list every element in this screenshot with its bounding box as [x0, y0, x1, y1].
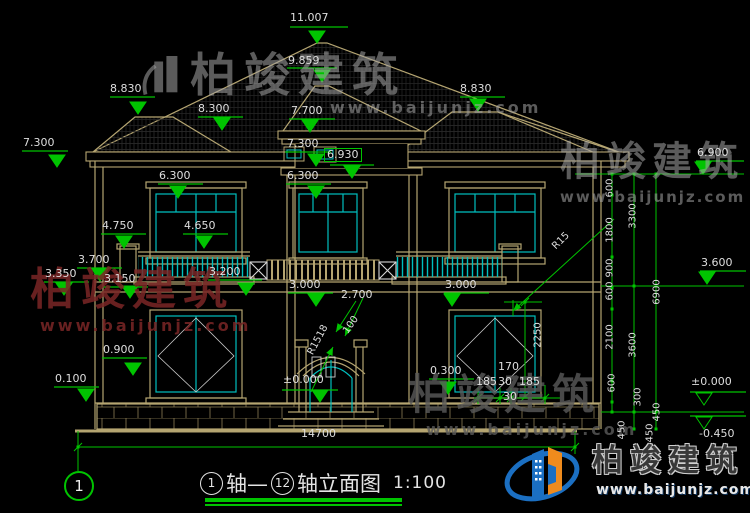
elevation-drawing — [0, 0, 750, 513]
title-text: 轴立面图 — [297, 468, 381, 498]
dim-label: 0.100 — [55, 373, 87, 385]
dim-label: 450 — [617, 420, 628, 439]
dim-label: 9.859 — [288, 55, 320, 67]
dim-label: 1800 — [605, 217, 616, 242]
brand-name: 柏竣建筑 — [592, 446, 744, 477]
axis-end-bubble: 12 — [271, 472, 294, 495]
dim-label: 7.300 — [287, 138, 319, 150]
dim-label: 14700 — [301, 428, 336, 440]
dim-label: 6.300 — [287, 170, 319, 182]
dim-label: 170 — [498, 361, 519, 373]
dim-label: 3.200 — [209, 266, 241, 278]
dim-label: 4.650 — [184, 220, 216, 232]
dim-label: 300 — [633, 387, 644, 406]
dim-label: 7.700 — [291, 105, 323, 117]
dim-label: 8.300 — [198, 103, 230, 115]
dim-label: 450 — [652, 402, 663, 421]
dim-label: 185 — [476, 376, 497, 388]
dim-label: 0.300 — [430, 365, 462, 377]
dim-label: 3.600 — [701, 257, 733, 269]
dim-label: -0.450 — [699, 428, 734, 440]
dim-label: 8.830 — [460, 83, 492, 95]
brand-logo: 柏竣建筑 www.baijunjz.com — [500, 438, 750, 510]
dim-label: ±0.000 — [691, 376, 732, 388]
title-underline — [205, 498, 402, 502]
dim-label: 4.750 — [102, 220, 134, 232]
blueprint-canvas: 柏竣建筑 www.baijunjz.com 柏竣建筑 www.baijunjz.… — [0, 0, 750, 513]
dim-label: 3300 — [628, 203, 639, 228]
dim-label: 3.000 — [289, 279, 321, 291]
dim-label: 0.900 — [103, 344, 135, 356]
dim-label: 3.350 — [45, 268, 77, 280]
dim-label: 6.300 — [159, 170, 191, 182]
title-text: 轴— — [226, 468, 268, 498]
dim-label: 600 — [605, 281, 616, 300]
dim-label: 600 — [605, 178, 616, 197]
brand-url: www.baijunjz.com — [596, 482, 750, 498]
dim-label: 900 — [605, 258, 616, 277]
dim-label: 3.000 — [445, 279, 477, 291]
dim-label: 2250 — [533, 322, 544, 347]
dim-label: 6.930 — [324, 148, 362, 162]
dim-label: 3600 — [628, 332, 639, 357]
dim-label: 2100 — [605, 324, 616, 349]
dim-label: 8.830 — [110, 83, 142, 95]
dim-label: 450 — [645, 423, 656, 442]
title-scale: 1:100 — [393, 473, 447, 493]
dim-label: 11.007 — [290, 12, 329, 24]
dim-label: 600 — [607, 373, 618, 392]
dim-label: 6.900 — [697, 147, 729, 159]
dim-label: ±0.000 — [283, 374, 324, 386]
dim-label: 6900 — [652, 279, 663, 304]
dim-label: 3.150 — [104, 273, 136, 285]
dim-label: 2.700 — [341, 289, 373, 301]
dim-label: 7.300 — [23, 137, 55, 149]
dim-label: 185 — [519, 376, 540, 388]
dim-label: 3.700 — [78, 254, 110, 266]
title-underline — [205, 504, 402, 506]
dim-label: 30 — [498, 376, 512, 388]
axis-bubble-1: 1 — [64, 471, 94, 501]
dim-label: 30 — [503, 391, 517, 403]
axis-start-bubble: 1 — [200, 472, 223, 495]
brand-logo-icon — [500, 438, 592, 510]
drawing-title: 1 轴— 12 轴立面图 1:100 — [197, 468, 447, 498]
